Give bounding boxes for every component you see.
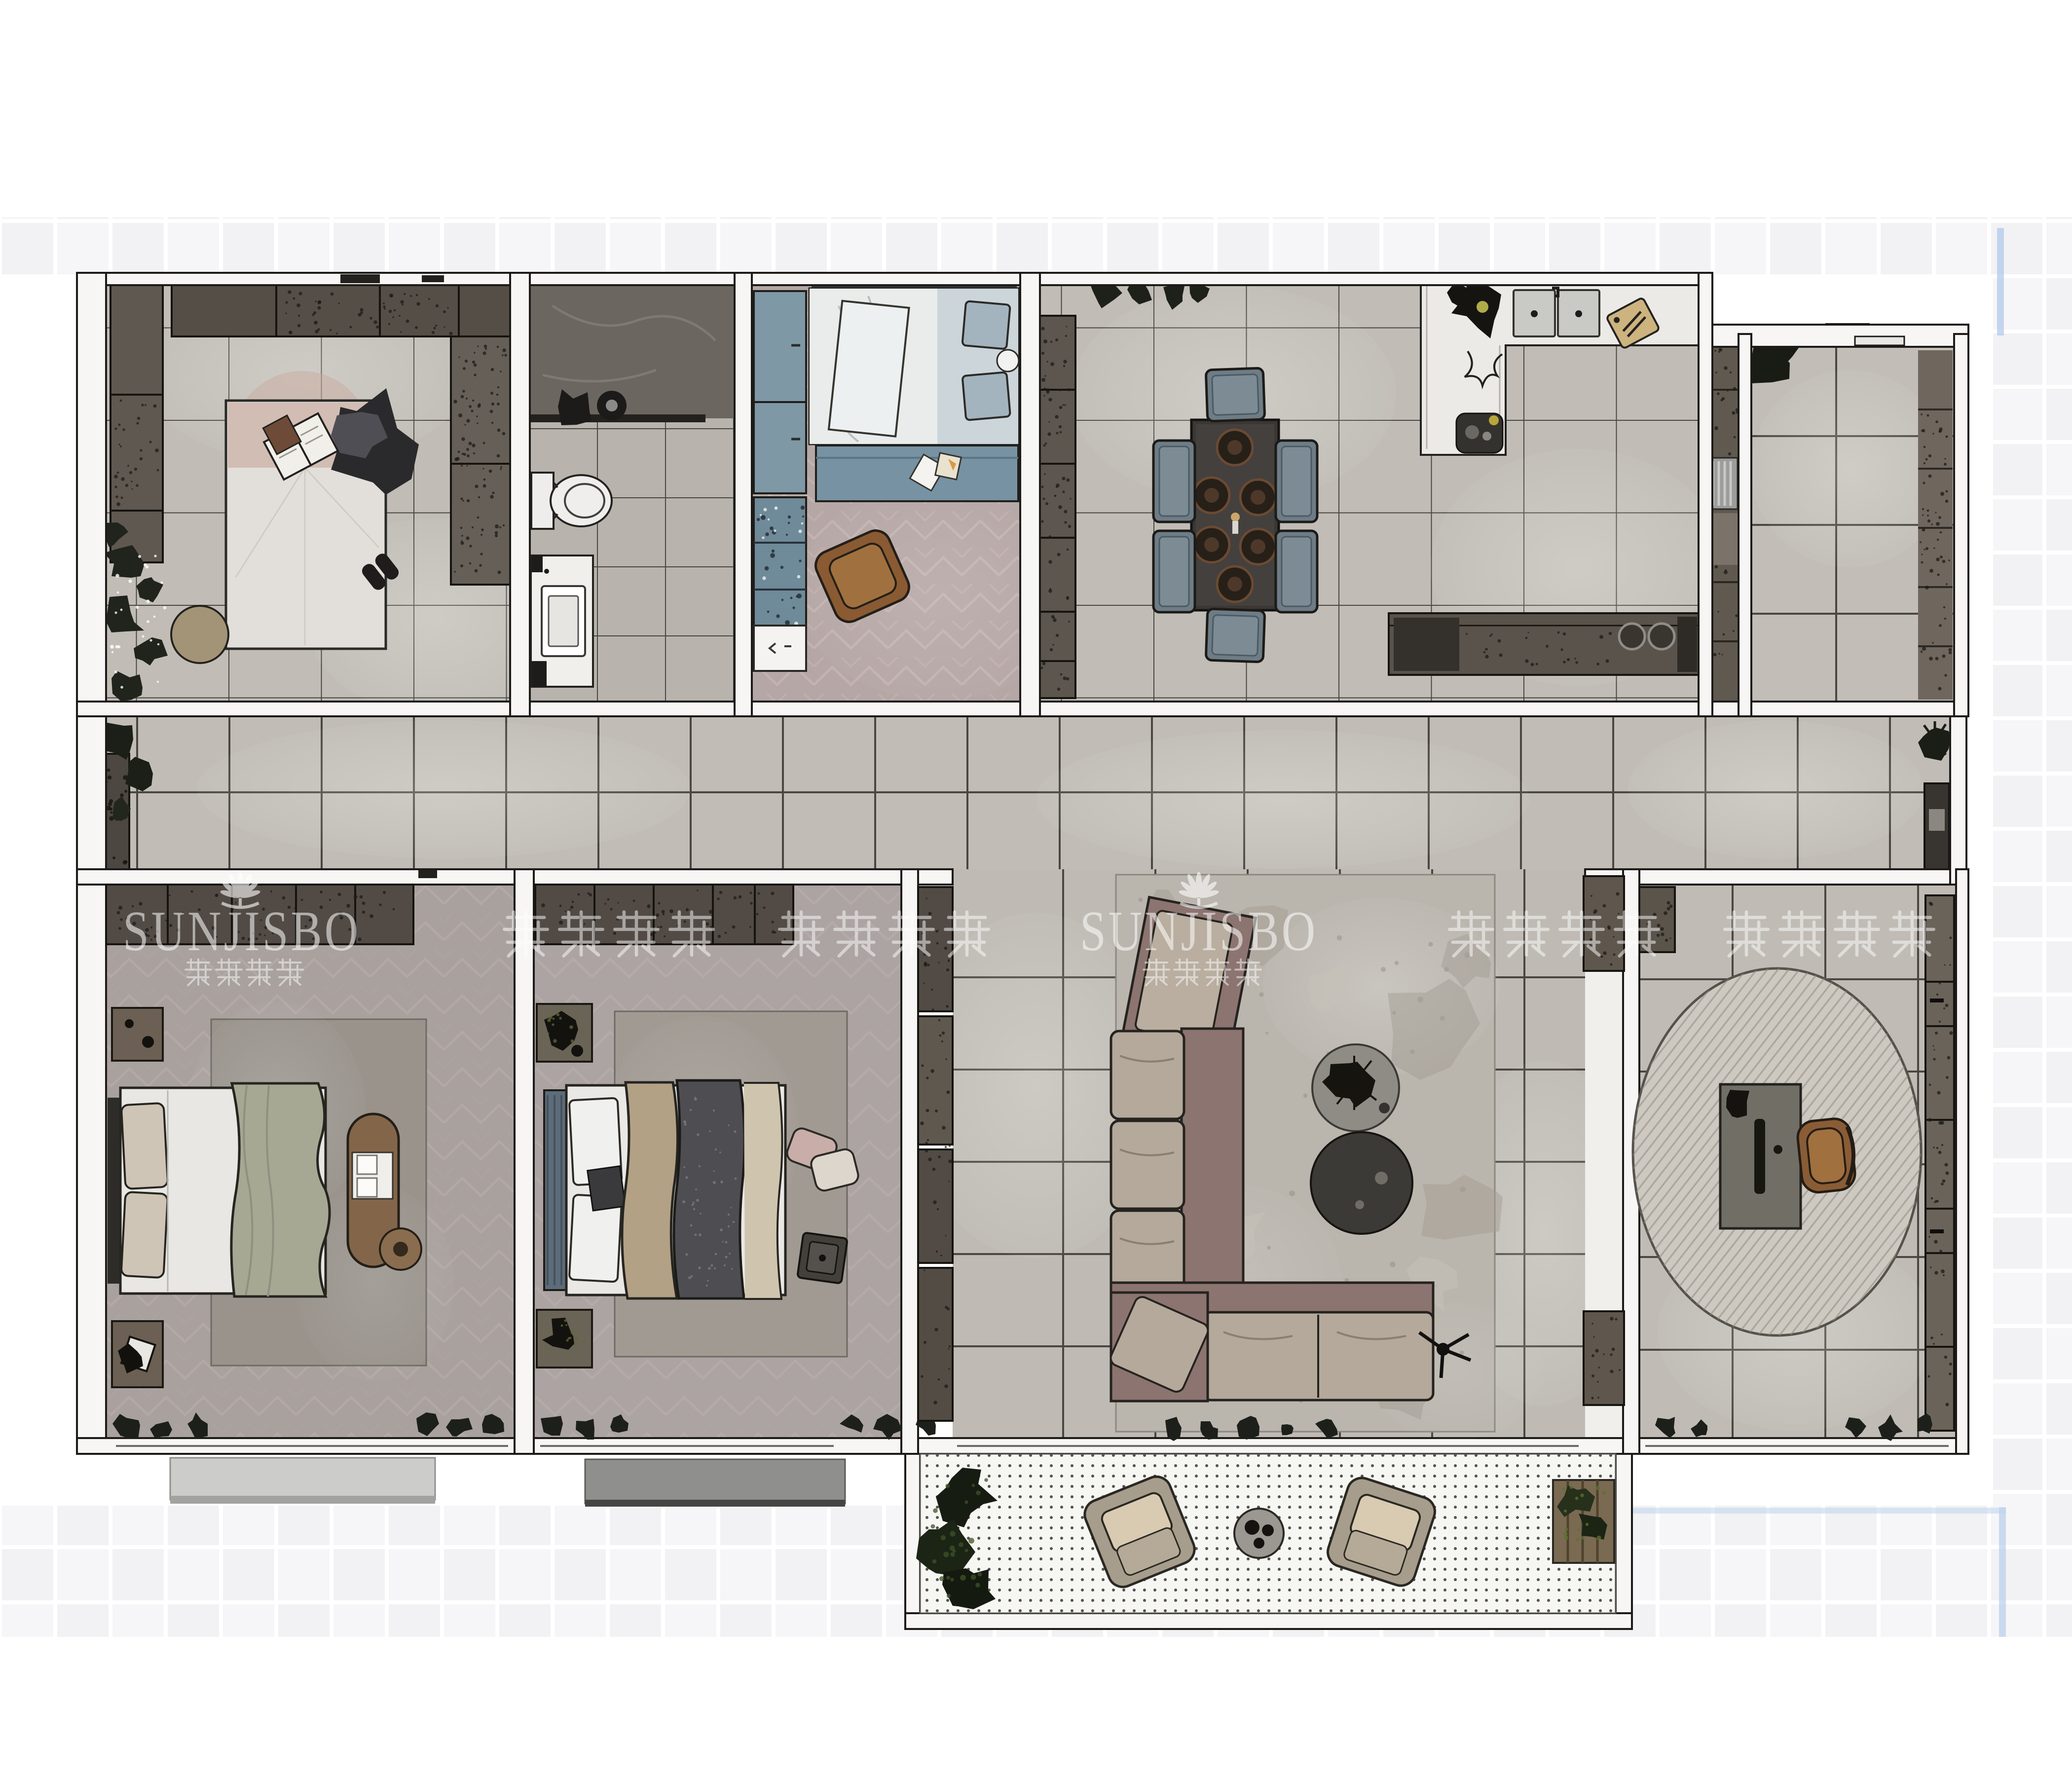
svg-text:SUNJISBO: SUNJISBO [1080,900,1318,963]
svg-text:SUNJISBO: SUNJISBO [123,900,361,963]
